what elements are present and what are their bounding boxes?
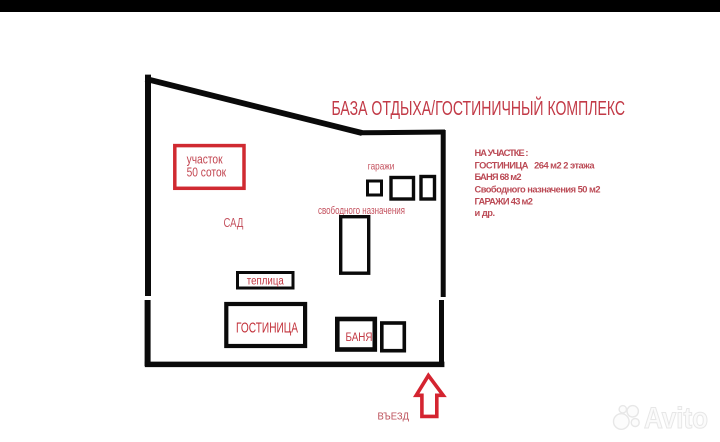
- svg-text:теплица: теплица: [247, 276, 284, 288]
- svg-text:и др.: и др.: [475, 208, 496, 218]
- svg-text:Свободного назначения 50 м2: Свободного назначения 50 м2: [475, 184, 601, 194]
- svg-text:БАНЯ 68 м2: БАНЯ 68 м2: [475, 172, 522, 182]
- svg-text:САД: САД: [224, 215, 244, 230]
- svg-text:Avito: Avito: [644, 402, 708, 435]
- svg-text:ГОСТИНИЦА: ГОСТИНИЦА: [236, 321, 298, 337]
- svg-text:БАЗА ОТДЫХА/ГОСТИНИЧНЫЙ КОМПЛЕ: БАЗА ОТДЫХА/ГОСТИНИЧНЫЙ КОМПЛЕКС: [332, 96, 626, 120]
- svg-text:50 соток: 50 соток: [187, 164, 227, 179]
- svg-text:ГОСТИНИЦА 264 м2 2 этажа: ГОСТИНИЦА 264 м2 2 этажа: [475, 160, 596, 170]
- svg-text:гаражи: гаражи: [368, 160, 395, 172]
- svg-text:ГАРАЖИ 43 м2: ГАРАЖИ 43 м2: [475, 196, 533, 206]
- svg-text:ВЪЕЗД: ВЪЕЗД: [378, 411, 410, 423]
- svg-text:НА УЧАСТКЕ :: НА УЧАСТКЕ :: [475, 148, 529, 158]
- svg-text:БАНЯ: БАНЯ: [346, 332, 373, 344]
